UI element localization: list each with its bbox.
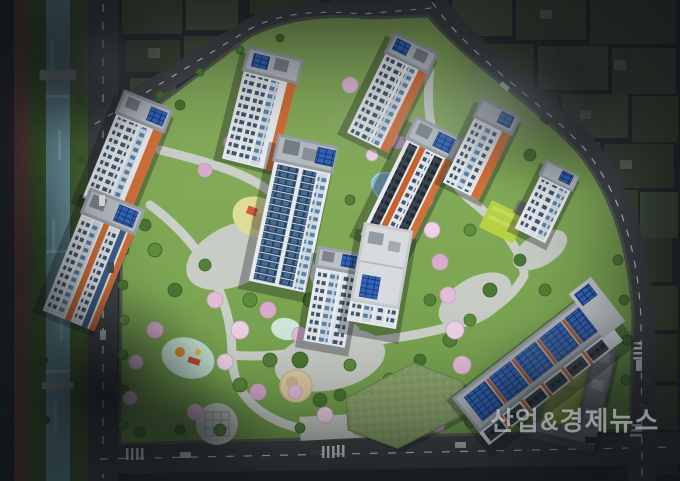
stream-bridge	[40, 70, 76, 80]
bike-path	[14, 0, 30, 481]
watermark-text: 산업&경제뉴스	[490, 401, 659, 438]
solar-panel	[315, 147, 336, 166]
rendering-image: 산업&경제뉴스	[0, 0, 680, 481]
solar-panel	[359, 275, 381, 300]
